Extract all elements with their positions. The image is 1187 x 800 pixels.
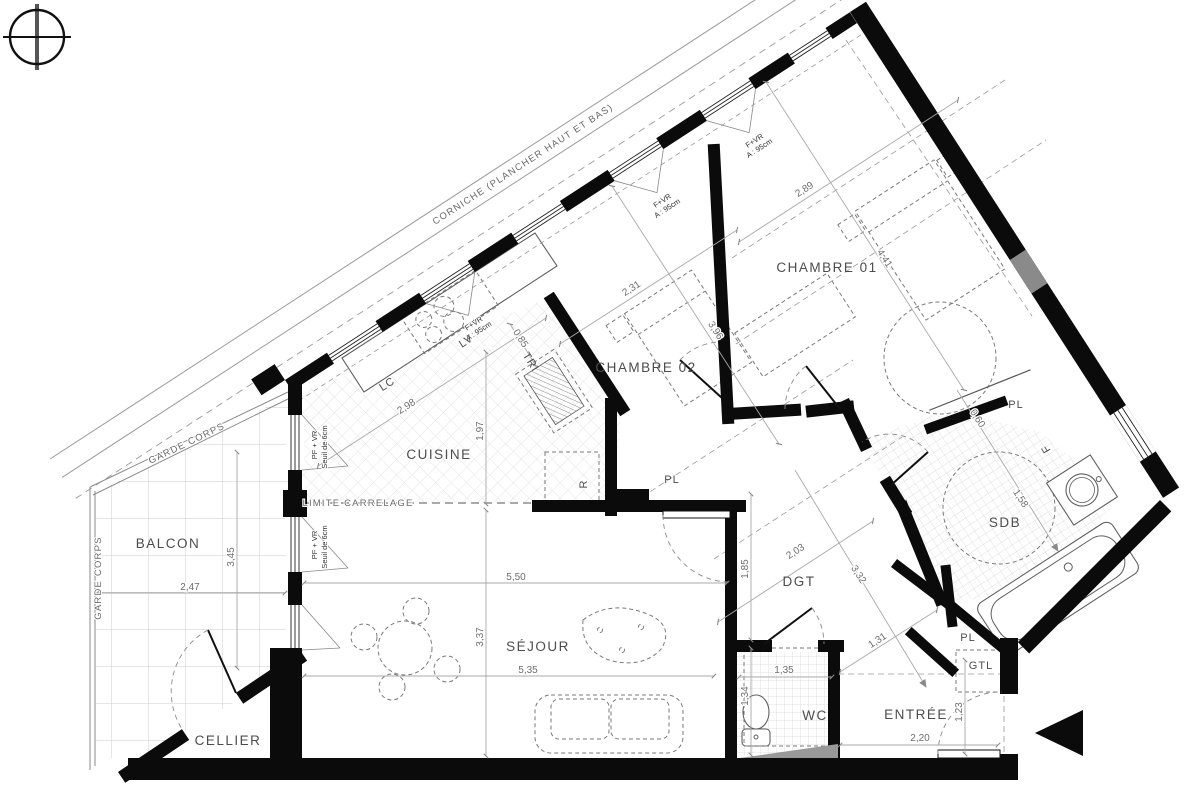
chambre01-door [785,366,840,409]
room-label-chambre01: CHAMBRE 01 [776,260,877,275]
dimension-balcon-profondeur: 3,45 [226,547,237,567]
dimension-wc-largeur: 1,35 [774,665,794,676]
room-label-chambre02: CHAMBRE 02 [595,360,696,375]
coffee-table [583,608,666,663]
wardrobe-chambre01 [735,273,856,377]
room-label-placard: PL [960,632,975,644]
dimension-entree-largeur: 2,20 [910,733,930,744]
equipment-label-refrigerateur: R [578,480,590,489]
compass-icon [3,4,71,70]
room-label-sejour: SÉJOUR [506,639,570,654]
room-label-balcon: BALCON [136,536,201,551]
window-label-pfvr: PF + VR [310,430,319,459]
room-label-placard: PL [1008,399,1023,411]
garde-corps-label-left: GARDE CORPS [93,536,104,619]
floor-plan: CORNICHE (PLANCHER HAUT ET BAS) F+VR A :… [0,0,1187,800]
dining-table [351,598,460,700]
dimension-dgt-largeur: 2,03 [784,542,807,562]
dimension-chambre02-largeur: 2,31 [620,279,643,299]
turning-circle-chambre01 [884,302,996,414]
dimension-wc-profondeur: 1,34 [740,686,751,706]
room-label-gtl: GTL [969,660,993,672]
dimension-balcon-largeur: 2,47 [180,582,200,593]
dimension-sejour-hauteur: 3,37 [475,627,486,647]
dimension-chambre01-largeur: 2,89 [793,180,816,200]
room-label-dgt: DGT [783,574,816,589]
entrance-arrow-icon [1035,710,1083,756]
sejour-door [663,511,730,582]
bed-chambre01 [837,148,1024,332]
sofa [535,695,683,753]
dimension-dgt-hauteur: 1,85 [740,559,751,579]
dimension-entree-hauteur: 1,23 [954,702,965,722]
window-label-pfvr-seuil: Seuil de 6cm [320,525,329,568]
window-label-pfvr: PF + VR [310,530,319,559]
room-label-sdb: SDB [989,515,1021,530]
window-label-pfvr-seuil: Seuil de 6cm [320,425,329,468]
room-label-placard: PL [664,474,679,486]
room-label-entree: ENTRÉE [884,707,948,722]
room-label-wc: WC [802,708,828,723]
limite-carrelage-label: LIMITE CARRELAGE [302,498,413,509]
wc-door [764,608,824,644]
entrance-door [938,692,1002,758]
corniche-label: CORNICHE (PLANCHER HAUT ET BAS) [431,102,616,228]
floor-plan-page: CORNICHE (PLANCHER HAUT ET BAS) F+VR A :… [0,0,1187,800]
dimension-cuisine-profondeur: 1,97 [475,421,486,441]
dimension-sejour-largeur-bas: 5,35 [518,665,538,676]
room-label-cuisine: CUISINE [406,447,471,462]
dimension-sejour-largeur-haut: 5,50 [506,572,526,583]
room-label-cellier: CELLIER [195,733,262,748]
dimension-dgt-diagonale: 3,32 [848,563,868,586]
east-facade-wall [850,2,1179,498]
